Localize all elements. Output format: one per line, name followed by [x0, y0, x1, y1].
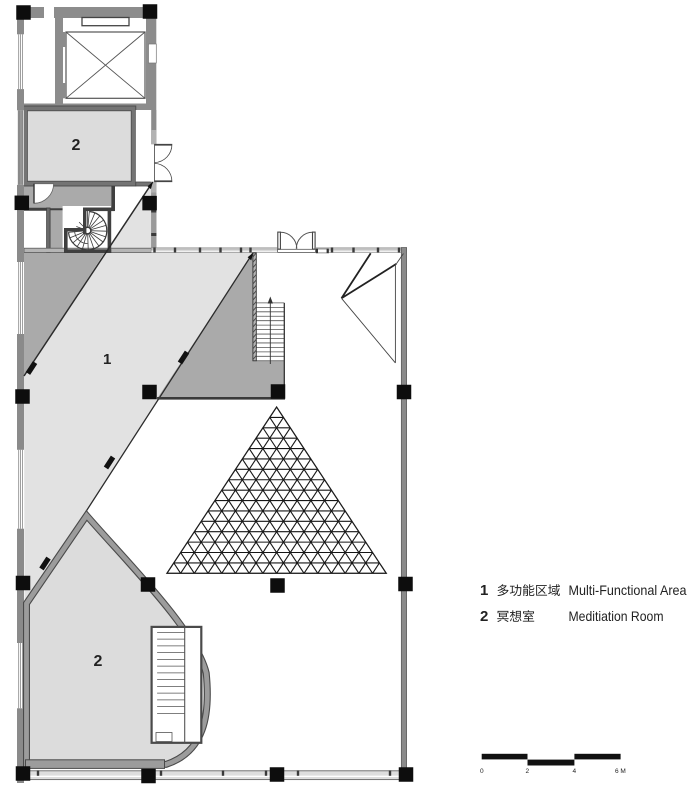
svg-text:Multi-Functional Area: Multi-Functional Area: [569, 582, 687, 598]
svg-text:4: 4: [573, 768, 577, 775]
svg-text:2: 2: [480, 608, 488, 625]
svg-text:2: 2: [72, 137, 81, 154]
svg-text:2: 2: [526, 768, 530, 775]
svg-text:1: 1: [480, 582, 488, 599]
svg-text:1: 1: [103, 351, 111, 368]
svg-text:0: 0: [480, 768, 484, 775]
svg-text:Meditiation Room: Meditiation Room: [569, 608, 664, 624]
svg-text:2: 2: [94, 653, 103, 670]
svg-text:6 M: 6 M: [615, 768, 626, 775]
